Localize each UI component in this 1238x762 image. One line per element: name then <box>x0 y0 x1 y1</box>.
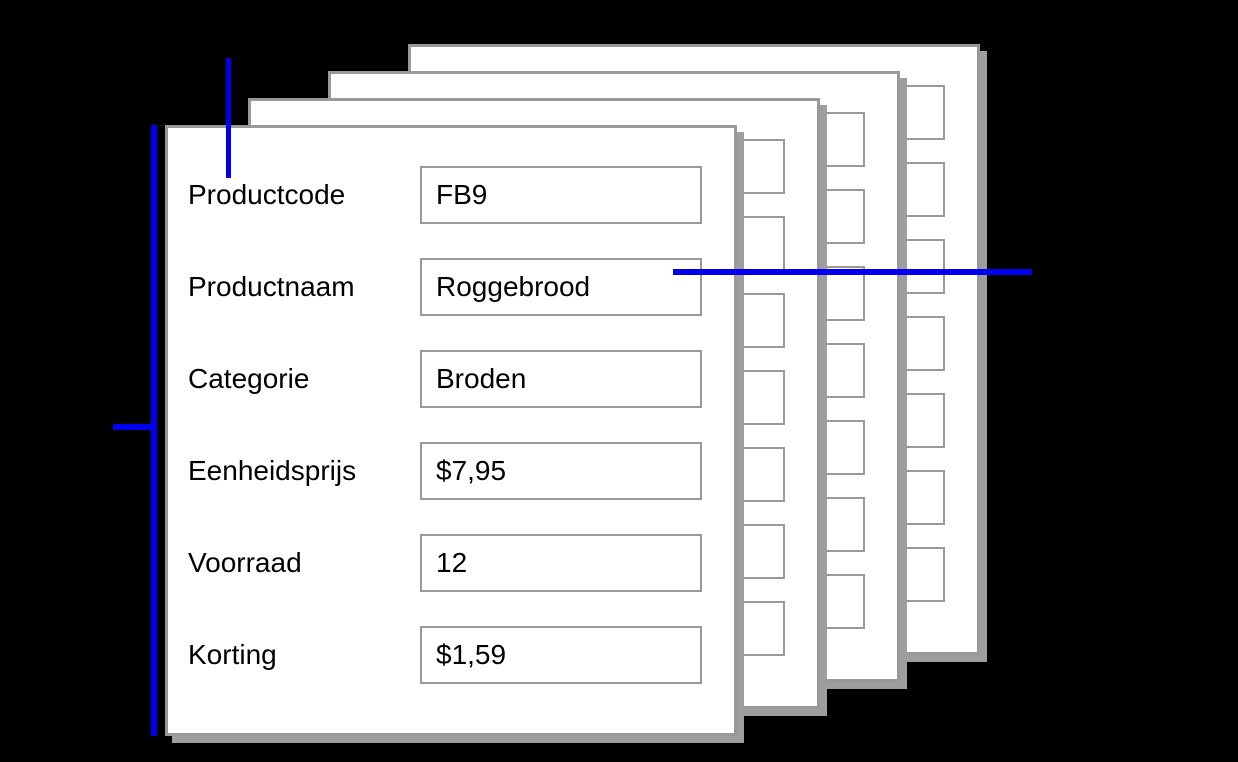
field-label-korting: Korting <box>188 639 277 671</box>
annotation-line-to-field <box>673 269 1032 275</box>
form-row-korting: Korting $1,59 <box>168 626 734 684</box>
field-input-voorraad[interactable]: 12 <box>420 534 702 592</box>
product-form-card: Productcode FB9 Productnaam Roggebrood C… <box>165 125 737 736</box>
form-row-productnaam: Productnaam Roggebrood <box>168 258 734 316</box>
annotation-bracket-tick <box>113 424 157 430</box>
field-input-eenheidsprijs[interactable]: $7,95 <box>420 442 702 500</box>
field-label-categorie: Categorie <box>188 363 309 395</box>
field-input-categorie[interactable]: Broden <box>420 350 702 408</box>
annotation-line-to-label-column <box>226 58 231 178</box>
field-value-productnaam: Roggebrood <box>436 271 590 303</box>
field-label-eenheidsprijs: Eenheidsprijs <box>188 455 356 487</box>
field-value-productcode: FB9 <box>436 179 487 211</box>
form-row-productcode: Productcode FB9 <box>168 166 734 224</box>
field-value-eenheidsprijs: $7,95 <box>436 455 506 487</box>
field-label-productnaam: Productnaam <box>188 271 355 303</box>
field-value-korting: $1,59 <box>436 639 506 671</box>
diagram-canvas: Productcode FB9 Productnaam Roggebrood C… <box>0 0 1238 762</box>
form-row-eenheidsprijs: Eenheidsprijs $7,95 <box>168 442 734 500</box>
field-input-productnaam[interactable]: Roggebrood <box>420 258 702 316</box>
field-label-voorraad: Voorraad <box>188 547 302 579</box>
form-row-categorie: Categorie Broden <box>168 350 734 408</box>
field-value-voorraad: 12 <box>436 547 467 579</box>
field-input-korting[interactable]: $1,59 <box>420 626 702 684</box>
form-row-voorraad: Voorraad 12 <box>168 534 734 592</box>
annotation-bracket-form <box>151 125 157 736</box>
field-label-productcode: Productcode <box>188 179 345 211</box>
field-value-categorie: Broden <box>436 363 526 395</box>
field-input-productcode[interactable]: FB9 <box>420 166 702 224</box>
